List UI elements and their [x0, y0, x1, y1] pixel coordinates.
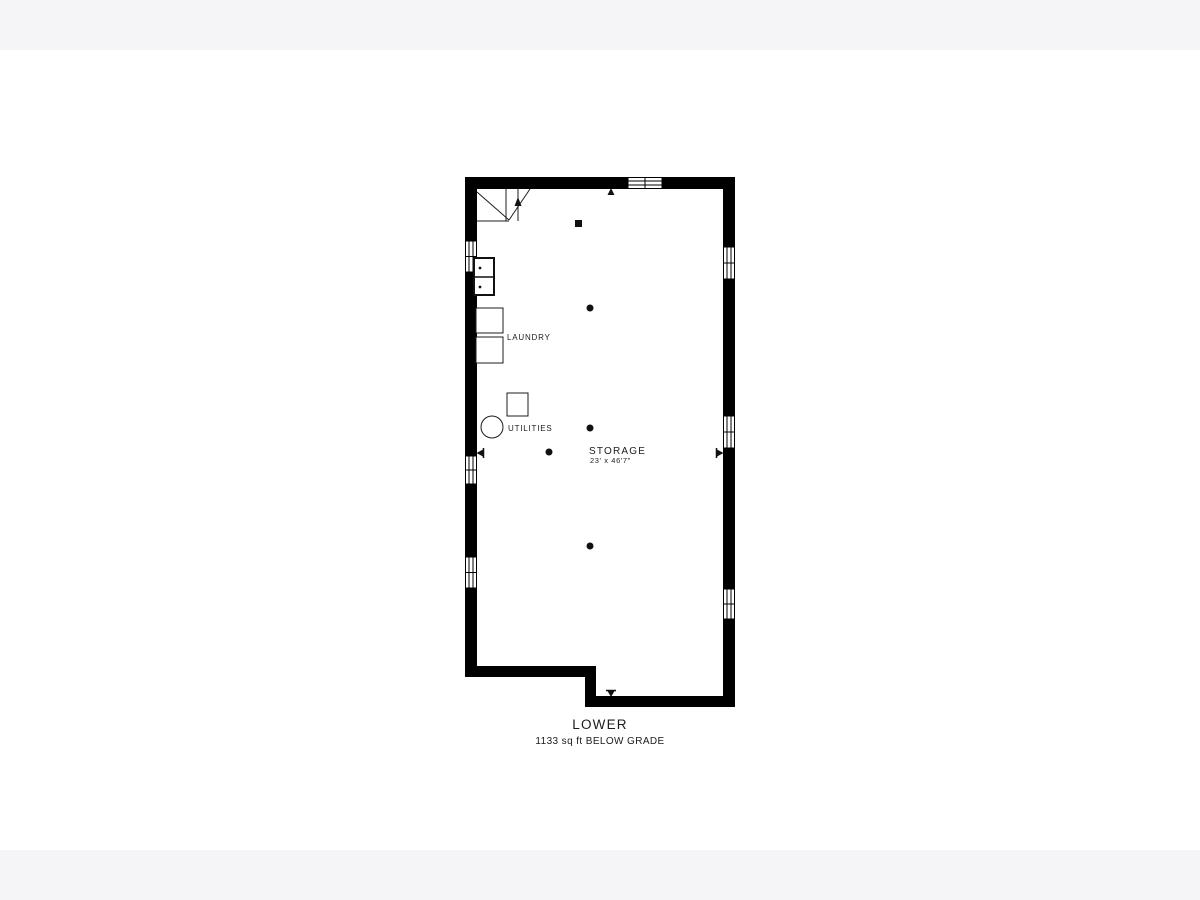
furnace [507, 393, 528, 416]
window-right-3 [724, 589, 735, 619]
floorplan-canvas: LAUNDRY UTILITIES STORAGE 23' x 46'7" LO… [0, 0, 1200, 900]
water-heater [481, 416, 503, 438]
ref-marker-left-icon [477, 448, 484, 458]
ref-marker-top-icon [608, 188, 615, 195]
window-right-1 [724, 247, 735, 279]
window-left-2 [466, 456, 477, 484]
support-column-3 [546, 449, 553, 456]
washer [476, 308, 503, 333]
support-column-2 [587, 425, 594, 432]
stairs [477, 189, 530, 221]
window-right-2 [724, 416, 735, 448]
support-column-4 [587, 543, 594, 550]
screenshot-root: LAUNDRY UTILITIES STORAGE 23' x 46'7" LO… [0, 0, 1200, 900]
dryer [476, 337, 503, 363]
plan-title: LOWER [572, 717, 628, 732]
storage-room-dimensions: 23' x 46'7" [590, 456, 631, 465]
laundry-sink [474, 258, 494, 295]
plan-subtitle: 1133 sq ft BELOW GRADE [535, 736, 664, 747]
support-post-square [575, 220, 582, 227]
laundry-label: LAUNDRY [507, 333, 551, 342]
support-column-1 [587, 305, 594, 312]
ref-marker-right-icon [717, 448, 724, 458]
wall-outline [465, 177, 735, 707]
utilities-label: UTILITIES [508, 424, 553, 433]
window-left-3 [466, 557, 477, 588]
window-top [628, 178, 662, 189]
stairs-up-arrow-icon [515, 197, 522, 221]
